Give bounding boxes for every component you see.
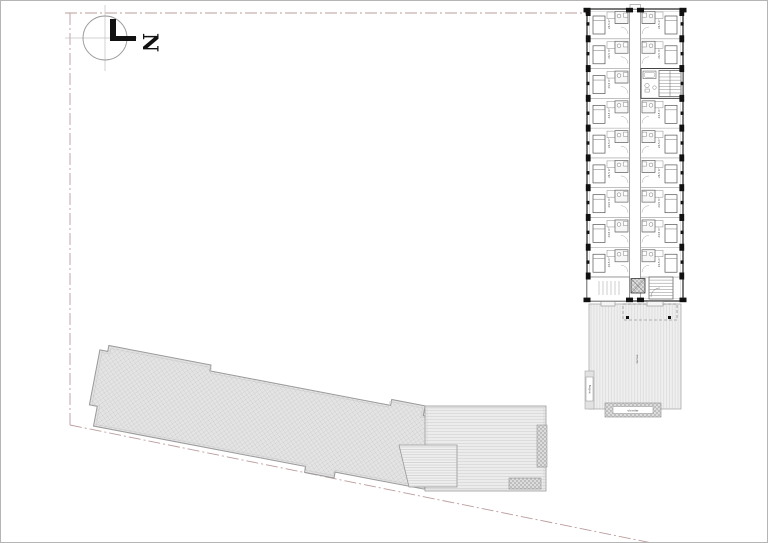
bottom-pad-label: vlonder: [627, 409, 639, 413]
bed-icon: [665, 195, 677, 213]
facade-pier: [586, 125, 591, 132]
wardrobe-icon: [655, 220, 663, 227]
unit-area-label: 24,5 m²: [607, 19, 611, 29]
toilet-icon: [649, 44, 653, 48]
deck-ramp: [399, 445, 457, 487]
facade-pier: [679, 273, 684, 280]
facade-pier: [679, 35, 684, 42]
apartment-building-plan: 24,5 m²24,5 m²24,5 m²24,5 m²24,5 m²24,5 …: [584, 5, 687, 307]
terrace-label: terras: [635, 354, 639, 363]
canopy-post: [626, 316, 629, 319]
entry-stoop: [601, 302, 615, 307]
north-arrow: N: [65, 5, 163, 71]
window-mullion: [586, 82, 589, 85]
shower-icon: [642, 251, 646, 255]
bed-icon: [665, 105, 677, 123]
bed-icon: [665, 224, 677, 242]
facade-pier: [679, 244, 684, 251]
facade-pier: [679, 214, 684, 221]
toilet-icon: [649, 193, 653, 197]
facade-pier: [586, 35, 591, 42]
staircase: [649, 277, 673, 299]
wardrobe-icon: [607, 191, 615, 198]
toilet-icon: [617, 103, 621, 107]
window-mullion: [681, 260, 684, 263]
bed-icon: [593, 16, 605, 34]
storage-room: [587, 277, 630, 301]
window-mullion: [681, 82, 684, 85]
toilet-icon: [617, 74, 621, 78]
shower-icon: [624, 192, 628, 196]
toilet-icon: [617, 163, 621, 167]
north-letter: N: [138, 33, 163, 52]
bed-icon: [593, 165, 605, 183]
wardrobe-icon: [607, 161, 615, 168]
facade-pier: [679, 184, 684, 191]
shower-icon: [642, 43, 646, 47]
toilet-icon: [645, 83, 649, 87]
north-arrow-horizontal-bar: [110, 36, 136, 41]
wardrobe-icon: [607, 72, 615, 79]
bed-icon: [593, 254, 605, 272]
toilet-icon: [617, 133, 621, 137]
toilet-icon: [617, 44, 621, 48]
site-plan-drawing: terrashellingvlonder 24,5 m²24,5 m²24,5 …: [1, 1, 767, 542]
window-mullion: [586, 201, 589, 204]
wardrobe-icon: [655, 131, 663, 138]
bed-icon: [665, 165, 677, 183]
bed-icon: [665, 16, 677, 34]
wardrobe-icon: [655, 250, 663, 256]
facade-pier: [626, 8, 633, 13]
wardrobe-icon: [607, 131, 615, 138]
unit-area-label: 24,5 m²: [607, 138, 611, 148]
window-mullion: [586, 22, 589, 25]
facade-pier: [584, 298, 591, 303]
unit-area-label: 24,5 m²: [657, 19, 661, 29]
shower-icon: [642, 102, 646, 106]
window-mullion: [586, 141, 589, 144]
bed-icon: [593, 76, 605, 94]
shower-icon: [624, 251, 628, 255]
window-mullion: [681, 141, 684, 144]
entry-stoop: [647, 302, 663, 307]
unit-area-label: 24,5 m²: [607, 227, 611, 237]
facade-pier: [679, 65, 684, 72]
shower-icon: [624, 43, 628, 47]
shower-icon: [624, 221, 628, 225]
toilet-icon: [617, 193, 621, 197]
facade-pier: [586, 184, 591, 191]
wardrobe-icon: [655, 12, 663, 19]
unit-area-label: 24,5 m²: [607, 168, 611, 178]
unit-area-label: 24,5 m²: [607, 257, 611, 267]
wardrobe-icon: [655, 191, 663, 198]
bed-icon: [593, 46, 605, 64]
window-mullion: [586, 171, 589, 174]
wardrobe-icon: [655, 101, 663, 108]
shower-icon: [642, 132, 646, 136]
wardrobe-icon: [607, 250, 615, 256]
shower-icon: [624, 13, 628, 17]
unit-area-label: 24,5 m²: [657, 108, 661, 118]
unit-area-label: 24,5 m²: [657, 257, 661, 267]
facade-pier: [586, 273, 591, 280]
unit-area-label: 24,5 m²: [657, 227, 661, 237]
bed-icon: [665, 254, 677, 272]
facade-pier: [637, 8, 644, 13]
toilet-icon: [649, 163, 653, 167]
facade-pier: [637, 298, 644, 303]
bed-icon: [665, 46, 677, 64]
stair-core: [641, 69, 683, 99]
wardrobe-icon: [655, 42, 663, 49]
wardrobe-icon: [655, 161, 663, 168]
shower-icon: [624, 132, 628, 136]
shower-icon: [642, 221, 646, 225]
window-mullion: [586, 112, 589, 115]
canopy-post: [668, 316, 671, 319]
window-mullion: [681, 231, 684, 234]
terrace-area: terrashellingvlonder: [585, 304, 681, 417]
facade-pier: [679, 125, 684, 132]
bed-icon: [593, 135, 605, 153]
wardrobe-icon: [607, 101, 615, 108]
parking-roof-hatch-area: [85, 344, 440, 495]
window-mullion: [681, 52, 684, 55]
toilet-icon: [649, 133, 653, 137]
toilet-icon: [617, 223, 621, 227]
roof-polygon: [85, 344, 440, 495]
unit-area-label: 24,5 m²: [657, 168, 661, 178]
toilet-icon: [649, 14, 653, 18]
facade-pier: [584, 8, 591, 13]
facade-pier: [680, 298, 687, 303]
bed-icon: [665, 135, 677, 153]
facade-pier: [679, 154, 684, 161]
bed-icon: [593, 105, 605, 123]
shower-icon: [642, 13, 646, 17]
unit-area-label: 24,5 m²: [607, 197, 611, 207]
wardrobe-icon: [607, 220, 615, 227]
wardrobe-icon: [607, 12, 615, 19]
window-mullion: [681, 201, 684, 204]
bed-icon: [593, 195, 605, 213]
facade-pier: [680, 8, 687, 13]
shower-icon: [624, 73, 628, 77]
cistern-icon: [645, 89, 649, 92]
facade-pier: [586, 95, 591, 102]
shower-icon: [624, 162, 628, 166]
toilet-icon: [649, 252, 653, 256]
unit-area-label: 24,5 m²: [657, 138, 661, 148]
wardrobe-icon: [607, 42, 615, 49]
unit-area-label: 24,5 m²: [607, 108, 611, 118]
facade-pier: [679, 95, 684, 102]
window-mullion: [586, 52, 589, 55]
unit-area-label: 24,5 m²: [607, 78, 611, 88]
window-mullion: [586, 231, 589, 234]
facade-pier: [626, 298, 633, 303]
deck-side-strip: [537, 425, 547, 467]
toilet-icon: [617, 252, 621, 256]
toilet-icon: [649, 223, 653, 227]
staircase: [659, 71, 681, 97]
window-mullion: [586, 260, 589, 263]
toilet-icon: [649, 103, 653, 107]
shower-icon: [624, 102, 628, 106]
unit-area-label: 24,5 m²: [657, 49, 661, 59]
site-plan-page: terrashellingvlonder 24,5 m²24,5 m²24,5 …: [0, 0, 768, 543]
roof-polygon-group: [85, 344, 440, 495]
window-mullion: [681, 22, 684, 25]
facade-pier: [586, 214, 591, 221]
bed-icon: [593, 224, 605, 242]
ramp-strip-label: helling: [588, 384, 592, 393]
unit-area-label: 24,5 m²: [607, 49, 611, 59]
shower-icon: [642, 162, 646, 166]
shower-icon: [642, 192, 646, 196]
basin-icon: [653, 86, 657, 90]
window-mullion: [681, 171, 684, 174]
deck-corner-pad: [509, 478, 541, 489]
facade-pier: [586, 244, 591, 251]
facade-pier: [586, 65, 591, 72]
unit-area-label: 24,5 m²: [657, 197, 661, 207]
facade-pier: [586, 154, 591, 161]
toilet-icon: [617, 14, 621, 18]
window-mullion: [681, 112, 684, 115]
